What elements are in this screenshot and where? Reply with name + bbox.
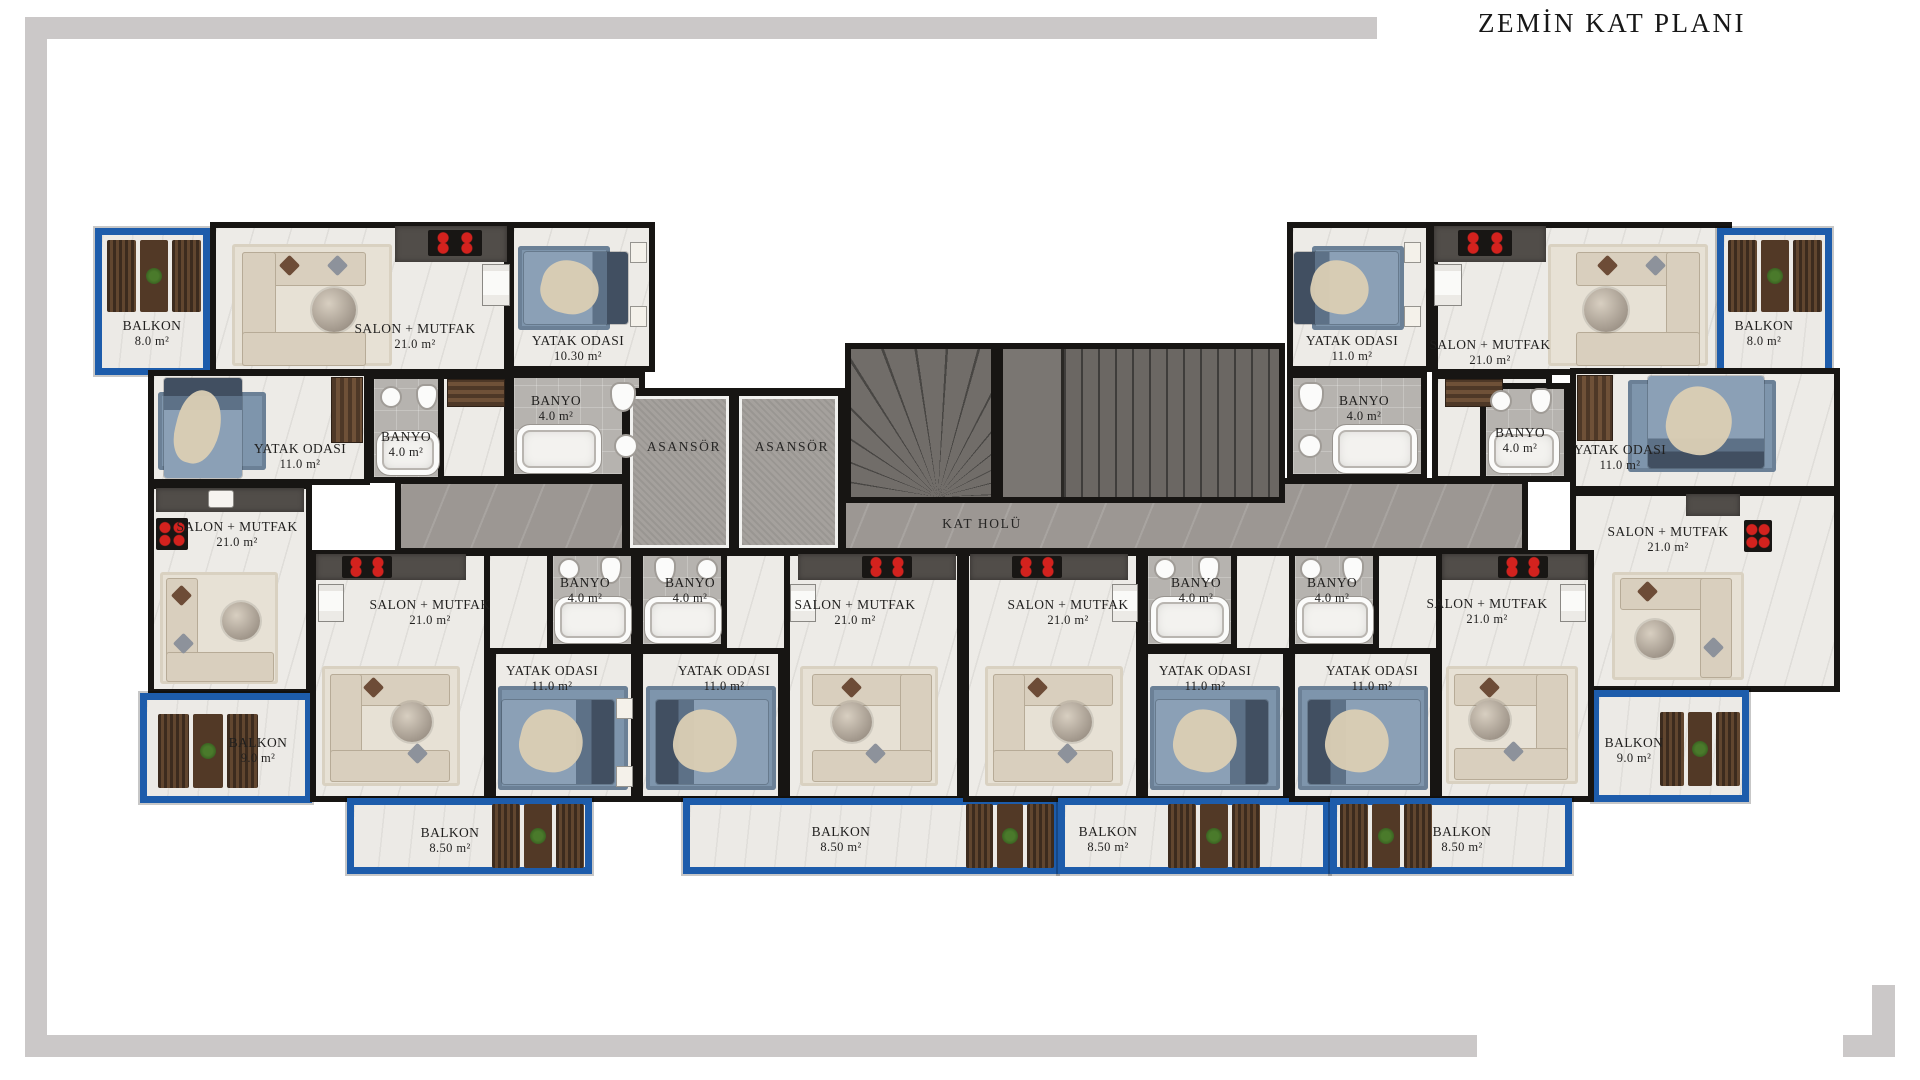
balcony-furniture	[1340, 804, 1432, 868]
label-yatak-b2: YATAK ODASI11.0 m²	[678, 663, 770, 693]
frame-bottom-bar	[25, 1035, 1477, 1057]
bed	[1308, 700, 1420, 784]
stair-steps	[1064, 349, 1279, 497]
corridor-b2	[721, 550, 790, 654]
bed	[502, 700, 614, 784]
sofa	[993, 750, 1113, 782]
label-yatak-tr: YATAK ODASI11.0 m²	[1306, 333, 1398, 363]
bathtub	[1332, 424, 1418, 474]
balcony-furniture	[492, 804, 584, 868]
sofa	[1576, 332, 1700, 366]
corridor-b3	[1231, 550, 1295, 654]
coffee-table	[312, 288, 356, 332]
sofa	[166, 652, 274, 682]
label-balkon-r: BALKON9.0 m²	[1605, 735, 1664, 765]
washbasin	[1490, 390, 1512, 412]
label-banyo-b3: BANYO4.0 m²	[1171, 575, 1221, 605]
label-balkon-tl: BALKON8.0 m²	[123, 318, 182, 348]
nightstand	[616, 766, 633, 787]
sofa	[1700, 578, 1732, 678]
page-title: ZEMİN KAT PLANI	[1478, 8, 1746, 39]
balcony-furniture	[1168, 804, 1260, 868]
label-yatak-b1: YATAK ODASI11.0 m²	[506, 663, 598, 693]
winder-stairs	[845, 343, 997, 503]
coffee-table	[222, 602, 260, 640]
nightstand	[1404, 306, 1421, 327]
label-salon-b2: SALON + MUTFAK21.0 m²	[795, 597, 916, 627]
wardrobe	[1578, 376, 1612, 440]
label-yatak-l: YATAK ODASI11.0 m²	[254, 441, 346, 471]
coffee-table	[1584, 288, 1628, 332]
label-banyo-tr: BANYO4.0 m²	[1339, 393, 1389, 423]
label-yatak-b3: YATAK ODASI11.0 m²	[1159, 663, 1251, 693]
nightstand	[616, 698, 633, 719]
washbasin	[614, 434, 638, 458]
label-yatak-tl: YATAK ODASI10.30 m²	[532, 333, 624, 363]
coffee-table	[1636, 620, 1674, 658]
label-banyo-b1: BANYO4.0 m²	[560, 575, 610, 605]
label-elevator-1: ASANSÖR	[647, 439, 721, 455]
label-banyo-tl: BANYO4.0 m²	[531, 393, 581, 423]
straight-stairs	[997, 343, 1285, 503]
fridge	[318, 584, 344, 622]
sofa	[330, 750, 450, 782]
fridge	[482, 264, 510, 306]
stove	[1458, 230, 1512, 256]
coffee-table	[832, 702, 872, 742]
wardrobe	[448, 380, 504, 406]
bed	[1156, 700, 1268, 784]
kitchen-sink	[208, 490, 234, 508]
coffee-table	[392, 702, 432, 742]
label-salon-tl: SALON + MUTFAK21.0 m²	[355, 321, 476, 351]
label-balkon-b4: BALKON8.50 m²	[1433, 824, 1492, 854]
label-balkon-tr: BALKON8.0 m²	[1735, 318, 1794, 348]
floor-plan-page: ZEMİN KAT PLANI	[0, 0, 1920, 1080]
label-salon-l: SALON + MUTFAK21.0 m²	[177, 519, 298, 549]
label-banyo-l: BANYO4.0 m²	[381, 429, 431, 459]
frame-left-bar	[25, 17, 47, 1057]
label-kat-holu: KAT HOLÜ	[942, 516, 1022, 532]
label-salon-b1: SALON + MUTFAK21.0 m²	[370, 597, 491, 627]
label-balkon-b1: BALKON8.50 m²	[421, 825, 480, 855]
label-salon-tr: SALON + MUTFAK21.0 m²	[1430, 337, 1551, 367]
elevator-shaft	[739, 396, 838, 548]
label-yatak-b4: YATAK ODASI11.0 m²	[1326, 663, 1418, 693]
stove	[1498, 556, 1548, 578]
bed	[164, 378, 242, 478]
floor-plan: BALKON8.0 m² SALON + MUTFAK21.0 m² YATAK…	[0, 0, 1920, 1080]
label-balkon-b3: BALKON8.50 m²	[1079, 824, 1138, 854]
label-balkon-b2: BALKON8.50 m²	[812, 824, 871, 854]
bed	[656, 700, 768, 784]
kitchen-counter	[1686, 494, 1740, 516]
stair-landing	[1003, 349, 1064, 497]
frame-corner-v	[1872, 985, 1895, 1057]
stove	[428, 230, 482, 256]
elevator-block	[622, 388, 846, 556]
frame-top-bar	[25, 17, 1377, 39]
label-salon-b3: SALON + MUTFAK21.0 m²	[1008, 597, 1129, 627]
nightstand	[1404, 242, 1421, 263]
wardrobe	[332, 378, 362, 442]
label-salon-b4: SALON + MUTFAK21.0 m²	[1427, 596, 1548, 626]
elevator-shaft	[630, 396, 729, 548]
nightstand	[630, 306, 647, 327]
bed	[1294, 252, 1398, 324]
coffee-table	[1470, 700, 1510, 740]
stove	[1744, 520, 1772, 552]
nightstand	[630, 242, 647, 263]
label-yatak-r: YATAK ODASI11.0 m²	[1574, 442, 1666, 472]
stove	[1012, 556, 1062, 578]
bathtub	[516, 424, 602, 474]
label-banyo-b2: BANYO4.0 m²	[665, 575, 715, 605]
bed	[524, 252, 628, 324]
label-balkon-l: BALKON9.0 m²	[229, 735, 288, 765]
balcony-furniture	[966, 804, 1054, 868]
fridge	[1560, 584, 1586, 622]
label-banyo-b4: BANYO4.0 m²	[1307, 575, 1357, 605]
corridor-b1	[484, 550, 553, 654]
balcony-furniture	[1660, 712, 1740, 786]
balcony-furniture	[1728, 240, 1822, 312]
coffee-table	[1052, 702, 1092, 742]
washbasin	[1298, 434, 1322, 458]
balcony-furniture	[107, 240, 201, 312]
sofa	[242, 332, 366, 366]
stove	[862, 556, 912, 578]
washbasin	[380, 386, 402, 408]
fridge	[1434, 264, 1462, 306]
label-salon-r: SALON + MUTFAK21.0 m²	[1608, 524, 1729, 554]
stove	[342, 556, 392, 578]
label-elevator-2: ASANSÖR	[755, 439, 829, 455]
label-banyo-r: BANYO4.0 m²	[1495, 425, 1545, 455]
